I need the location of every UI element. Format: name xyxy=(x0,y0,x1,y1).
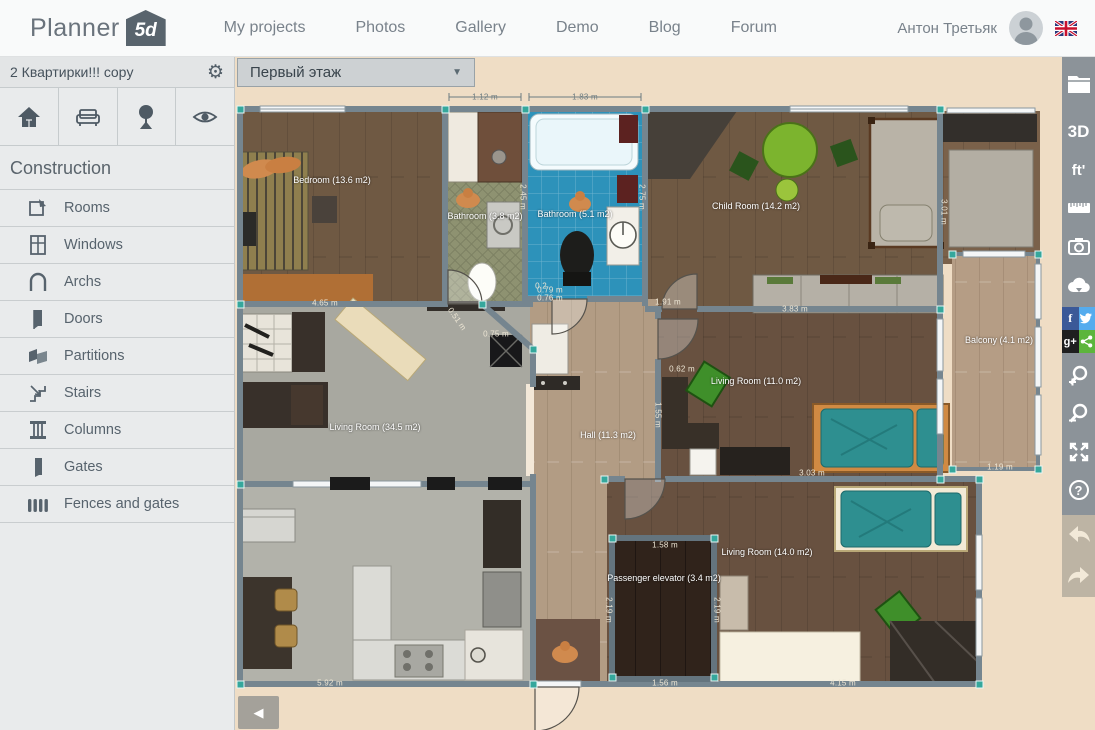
construction-section-title: Construction xyxy=(0,146,234,190)
nav-item-my-projects[interactable]: My projects xyxy=(224,19,306,37)
construction-item-doors[interactable]: Doors xyxy=(0,301,234,338)
language-flag-icon[interactable] xyxy=(1055,21,1077,36)
archs-icon xyxy=(26,271,50,293)
nav-item-demo[interactable]: Demo xyxy=(556,19,599,37)
zoom-out-icon xyxy=(1068,403,1090,425)
windows-icon xyxy=(26,234,50,256)
sofa-icon xyxy=(74,104,102,130)
cloud-icon xyxy=(1066,274,1092,294)
floorplan-svg xyxy=(235,57,1065,730)
construction-item-stairs[interactable]: Stairs xyxy=(0,375,234,412)
zoom-in-button[interactable] xyxy=(1062,357,1095,395)
nav-item-gallery[interactable]: Gallery xyxy=(455,19,506,37)
partitions-icon xyxy=(26,345,50,367)
social-buttons: f g+ xyxy=(1062,307,1095,353)
view-mode-button[interactable] xyxy=(176,88,234,145)
floor-selector-value: Первый этаж xyxy=(250,64,452,81)
nav-item-photos[interactable]: Photos xyxy=(355,19,405,37)
logo-house-icon: 5d xyxy=(126,10,166,46)
undo-icon xyxy=(1067,525,1091,547)
construction-item-fences[interactable]: Fences and gates xyxy=(0,486,234,523)
stairs-icon xyxy=(26,382,50,404)
outdoor-mode-button[interactable] xyxy=(118,88,177,145)
view-3d-label: 3D xyxy=(1068,122,1090,142)
user-area: Антон Третьяк xyxy=(897,11,1077,45)
redo-button[interactable] xyxy=(1062,556,1095,597)
help-button[interactable]: ? xyxy=(1062,471,1095,509)
logo-text: Planner xyxy=(30,14,120,43)
floorplan-canvas[interactable]: Bedroom (13.6 m2) Bathroom (3.8 m2) Bath… xyxy=(235,57,1095,730)
projects-folder-button[interactable] xyxy=(1062,65,1095,103)
person-icon xyxy=(1009,11,1043,45)
home-icon xyxy=(16,104,42,130)
planner5d-logo[interactable]: Planner 5d xyxy=(30,10,166,46)
fullscreen-icon xyxy=(1068,441,1090,463)
measure-button[interactable] xyxy=(1062,189,1095,227)
googleplus-icon: g+ xyxy=(1064,336,1077,348)
home-mode-button[interactable] xyxy=(0,88,59,145)
columns-icon xyxy=(26,419,50,441)
units-button[interactable]: ft' xyxy=(1062,151,1095,189)
doors-icon xyxy=(26,308,50,330)
left-panel: 2 Квартирки!!! copy ⚙ xyxy=(0,57,235,730)
user-name[interactable]: Антон Третьяк xyxy=(897,20,997,37)
facebook-button[interactable]: f xyxy=(1062,307,1079,330)
construction-item-columns[interactable]: Columns xyxy=(0,412,234,449)
nav-item-forum[interactable]: Forum xyxy=(731,19,777,37)
zoom-in-icon xyxy=(1068,365,1090,387)
zoom-out-button[interactable] xyxy=(1062,395,1095,433)
save-cloud-button[interactable] xyxy=(1062,265,1095,303)
twitter-button[interactable] xyxy=(1079,307,1095,330)
camera-icon xyxy=(1067,236,1091,256)
history-controls xyxy=(1062,515,1095,597)
help-icon: ? xyxy=(1069,480,1089,500)
construction-item-partitions[interactable]: Partitions xyxy=(0,338,234,375)
nav-item-blog[interactable]: Blog xyxy=(649,19,681,37)
construction-item-rooms[interactable]: Rooms xyxy=(0,190,234,227)
avatar[interactable] xyxy=(1009,11,1043,45)
snapshot-button[interactable] xyxy=(1062,227,1095,265)
construction-item-gates[interactable]: Gates xyxy=(0,449,234,486)
eye-icon xyxy=(191,107,219,127)
share-button[interactable] xyxy=(1079,330,1095,353)
furniture-mode-button[interactable] xyxy=(59,88,118,145)
view-3d-button[interactable]: 3D xyxy=(1062,113,1095,151)
construction-item-archs[interactable]: Archs xyxy=(0,264,234,301)
mode-toolbar xyxy=(0,88,234,146)
folder-icon xyxy=(1067,74,1091,94)
chevron-down-icon: ▼ xyxy=(452,67,462,78)
construction-item-windows[interactable]: Windows xyxy=(0,227,234,264)
construction-list: Rooms Windows Archs Doors Partitions Sta xyxy=(0,190,234,523)
share-icon xyxy=(1080,335,1093,348)
project-title: 2 Квартирки!!! copy xyxy=(10,64,207,80)
top-nav: Planner 5d My projects Photos Gallery De… xyxy=(0,0,1095,57)
floor-selector[interactable]: Первый этаж ▼ xyxy=(237,58,475,87)
collapse-panel-button[interactable]: ◀ xyxy=(238,696,279,729)
redo-icon xyxy=(1067,566,1091,588)
twitter-icon xyxy=(1080,313,1093,324)
facebook-icon: f xyxy=(1068,311,1072,326)
fullscreen-button[interactable] xyxy=(1062,433,1095,471)
googleplus-button[interactable]: g+ xyxy=(1062,330,1079,353)
project-header: 2 Квартирки!!! copy ⚙ xyxy=(0,57,234,88)
main-menu: My projects Photos Gallery Demo Blog For… xyxy=(224,19,777,37)
undo-button[interactable] xyxy=(1062,515,1095,556)
tree-icon xyxy=(133,103,159,131)
right-sidebar: 3D ft' f g+ xyxy=(1062,57,1095,515)
settings-gear-icon[interactable]: ⚙ xyxy=(207,63,224,82)
units-label: ft' xyxy=(1072,162,1086,179)
gates-icon xyxy=(26,456,50,478)
ruler-icon xyxy=(1067,202,1091,214)
rooms-icon xyxy=(26,197,50,219)
fences-icon xyxy=(26,493,50,515)
